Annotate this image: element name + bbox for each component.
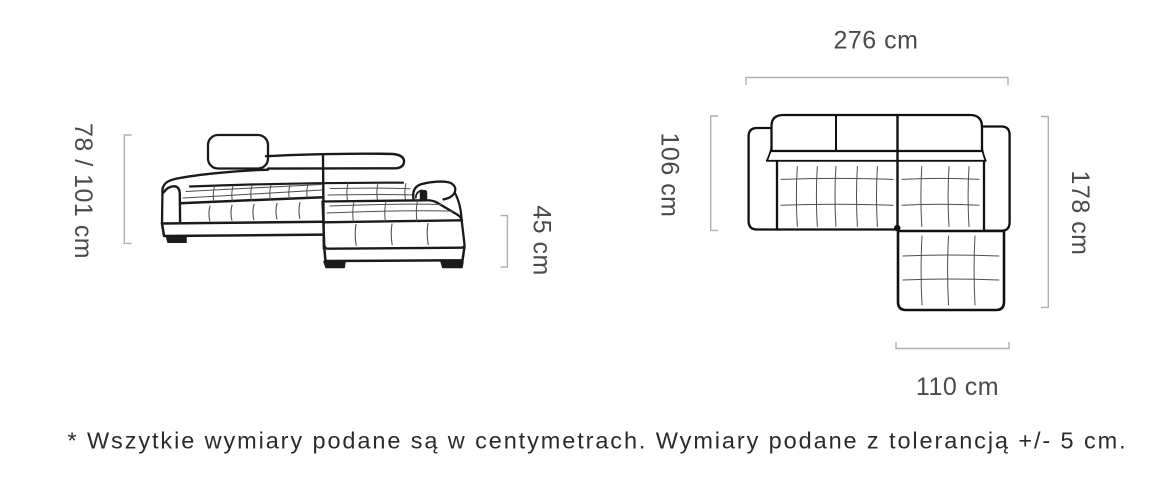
- svg-text:178 cm: 178 cm: [1066, 171, 1094, 256]
- svg-text:276 cm: 276 cm: [834, 27, 919, 55]
- svg-text:* Wszytkie wymiary podane są w: * Wszytkie wymiary podane są w centymetr…: [67, 428, 1127, 454]
- svg-text:106 cm: 106 cm: [656, 133, 684, 218]
- svg-text:78 / 101 cm: 78 / 101 cm: [69, 123, 97, 259]
- svg-text:110 cm: 110 cm: [916, 373, 999, 401]
- svg-text:45 cm: 45 cm: [528, 205, 556, 276]
